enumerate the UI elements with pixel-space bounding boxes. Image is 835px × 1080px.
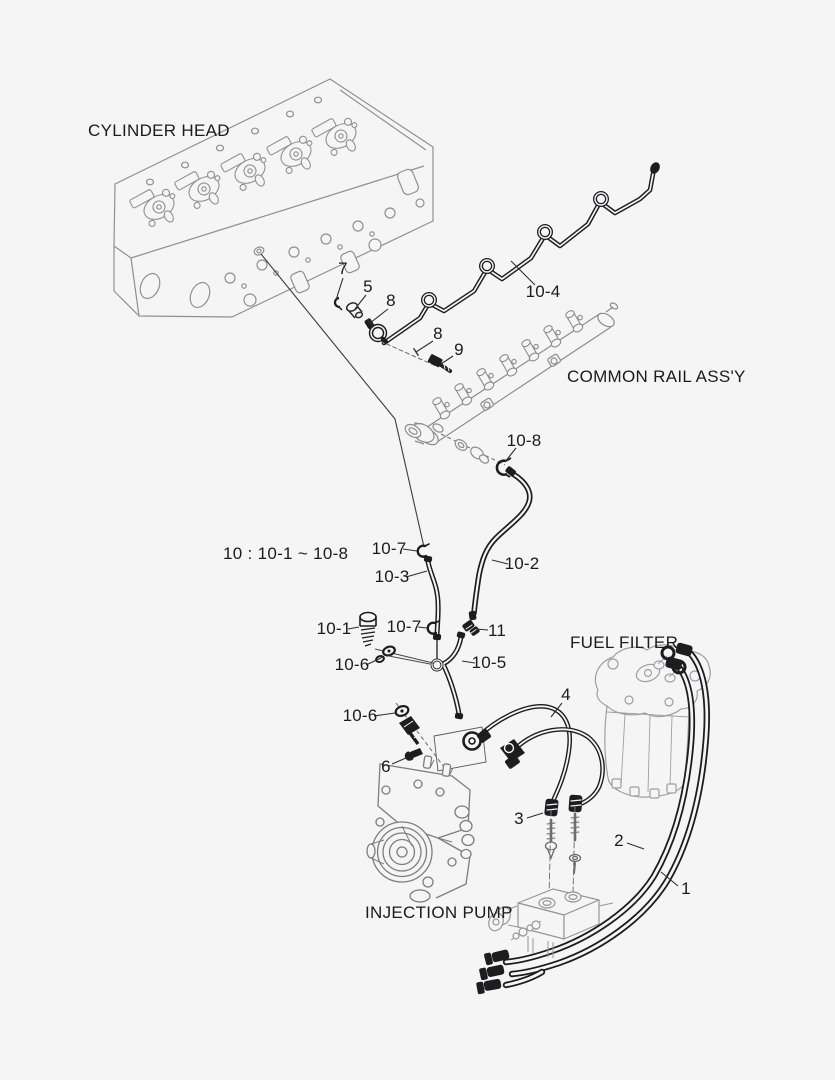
callout-7: 7 xyxy=(338,259,348,279)
leader-line-2 xyxy=(627,843,644,849)
callout-2: 2 xyxy=(614,831,624,851)
callout-8: 8 xyxy=(433,324,443,344)
leader-tick xyxy=(414,348,419,356)
callout-10-4: 10-4 xyxy=(526,282,561,302)
label-fuel-filter: FUEL FILTER xyxy=(570,633,678,653)
leader-line-1 xyxy=(661,872,678,886)
callout-4: 4 xyxy=(561,685,571,705)
leader-line-5 xyxy=(355,295,366,309)
callout-11: 11 xyxy=(488,621,506,641)
leader-line-11 xyxy=(476,629,488,630)
leader-line-4 xyxy=(551,703,562,717)
callout-10-2: 10-2 xyxy=(505,554,540,574)
label-injection-pump: INJECTION PUMP xyxy=(365,903,513,923)
callout-1: 1 xyxy=(681,879,691,899)
leader-line-3 xyxy=(527,813,543,818)
callout-10-5: 10-5 xyxy=(472,653,507,673)
label-common-rail-assy: COMMON RAIL ASS'Y xyxy=(567,367,746,387)
callout-10-6: 10-6 xyxy=(343,706,378,726)
leader-line-6 xyxy=(392,758,406,764)
callout-10-7: 10-7 xyxy=(372,539,407,559)
label-group-note: 10 : 10-1 ~ 10-8 xyxy=(223,544,348,564)
label-cylinder-head: CYLINDER HEAD xyxy=(88,121,230,141)
callout-10-6: 10-6 xyxy=(335,655,370,675)
callout-6: 6 xyxy=(381,757,391,777)
callout-10-8: 10-8 xyxy=(507,431,542,451)
callout-10-3: 10-3 xyxy=(375,567,410,587)
callout-10-1: 10-1 xyxy=(317,619,352,639)
leader-line-8 xyxy=(370,309,388,323)
callout-3: 3 xyxy=(514,809,524,829)
leader-line-8 xyxy=(416,341,433,352)
callout-5: 5 xyxy=(363,277,373,297)
leader-line-7 xyxy=(336,278,343,300)
leader-line-9 xyxy=(441,356,453,364)
parts-diagram-canvas: CYLINDER HEAD COMMON RAIL ASS'Y FUEL FIL… xyxy=(0,0,835,1080)
callout-8: 8 xyxy=(386,291,396,311)
callout-9: 9 xyxy=(454,340,464,360)
leader-tick xyxy=(367,319,373,326)
callout-10-7: 10-7 xyxy=(387,617,422,637)
